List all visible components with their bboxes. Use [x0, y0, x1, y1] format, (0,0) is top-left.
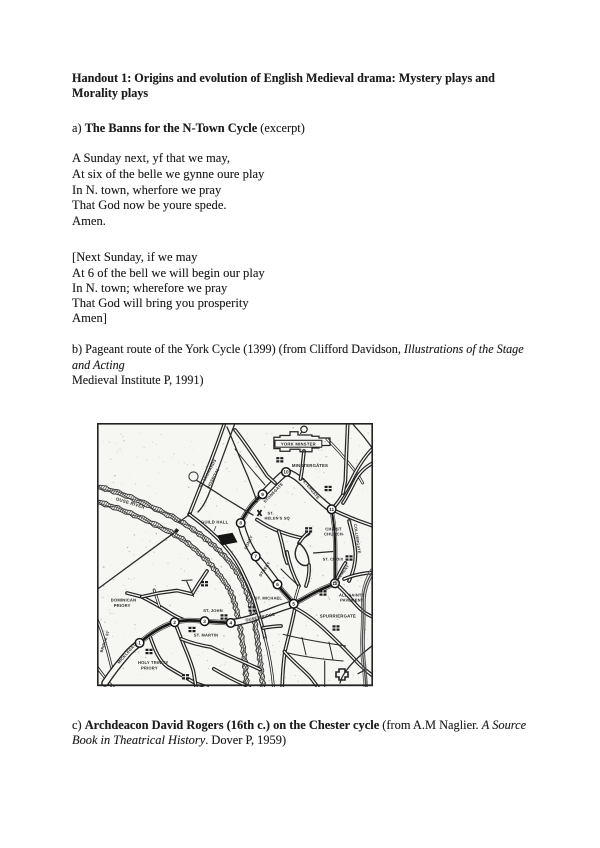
svg-text:ST. MICHAEL: ST. MICHAEL: [255, 596, 283, 601]
svg-text:6: 6: [276, 582, 279, 587]
svg-text:10: 10: [283, 470, 289, 475]
svg-text:SPURRIERGATE: SPURRIERGATE: [320, 614, 356, 619]
svg-text:DOMINICAN: DOMINICAN: [111, 598, 136, 603]
svg-text:ST. JOHN: ST. JOHN: [203, 608, 223, 613]
svg-text:HOLY TRINITY: HOLY TRINITY: [138, 660, 168, 665]
svg-text:HELEN'S SQ: HELEN'S SQ: [265, 516, 290, 521]
svg-text:8: 8: [239, 521, 242, 526]
svg-text:5: 5: [292, 602, 295, 607]
svg-text:CHURCH: CHURCH: [324, 532, 343, 537]
svg-text:7: 7: [254, 554, 257, 559]
svg-text:ST. CROIX: ST. CROIX: [323, 557, 344, 562]
svg-text:PRIORY: PRIORY: [114, 603, 131, 608]
svg-text:3: 3: [203, 619, 206, 624]
svg-text:11: 11: [329, 507, 334, 512]
svg-text:MINSTERGATES: MINSTERGATES: [292, 463, 328, 468]
svg-text:PAVEMENT: PAVEMENT: [340, 598, 364, 603]
svg-text:PRIORY: PRIORY: [141, 666, 158, 671]
svg-text:GUILD HALL: GUILD HALL: [201, 520, 229, 525]
svg-text:9: 9: [261, 492, 264, 497]
svg-text:1: 1: [138, 641, 141, 646]
svg-text:ST. MARTIN: ST. MARTIN: [194, 633, 218, 638]
svg-text:YORK MINSTER: YORK MINSTER: [281, 442, 316, 447]
svg-text:2: 2: [173, 620, 176, 625]
svg-text:4: 4: [229, 621, 232, 626]
